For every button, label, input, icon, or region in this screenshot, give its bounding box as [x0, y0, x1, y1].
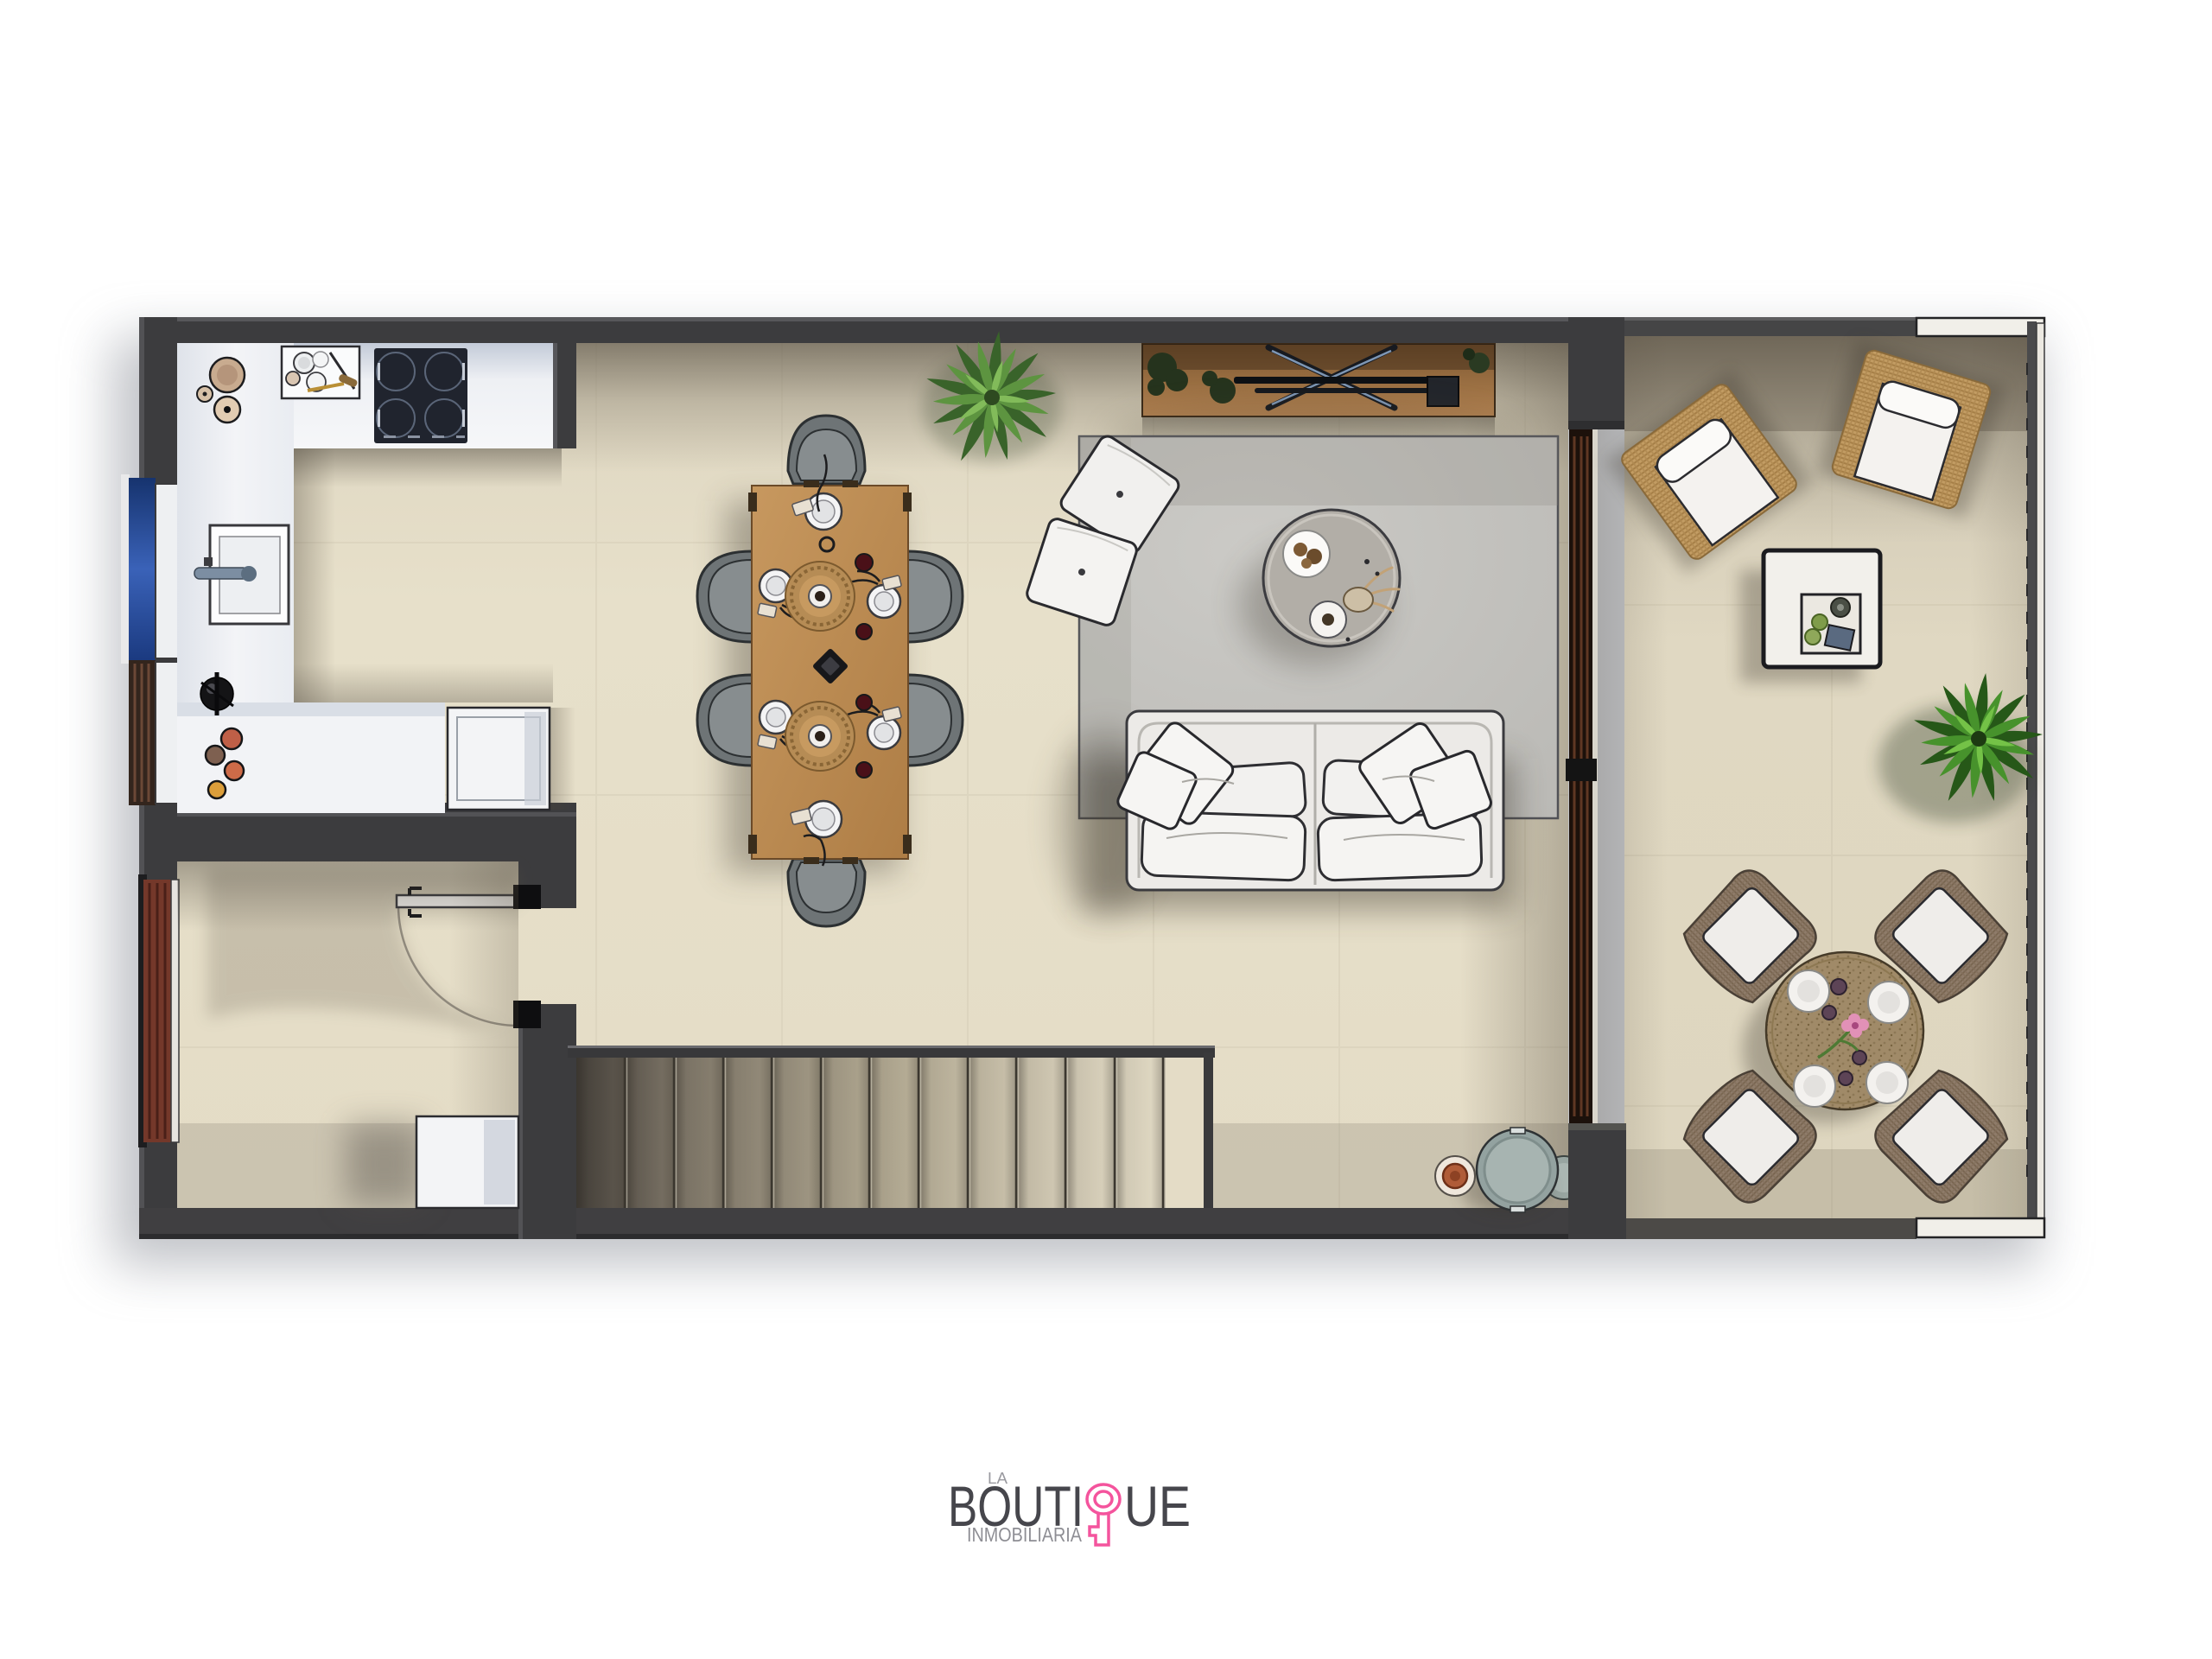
svg-text:INMOBILIARIA: INMOBILIARIA: [967, 1523, 1083, 1546]
svg-text:UE: UE: [1124, 1474, 1191, 1538]
